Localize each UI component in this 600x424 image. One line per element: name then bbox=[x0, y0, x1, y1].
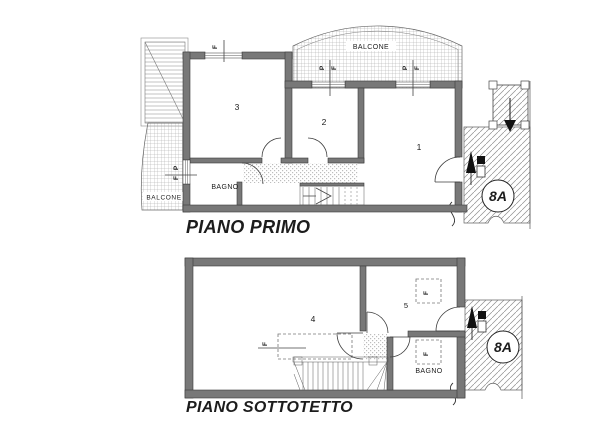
window-bagno bbox=[183, 160, 190, 184]
door-arc-room2 bbox=[308, 138, 327, 157]
door-arc-room4 bbox=[337, 333, 363, 359]
stair-landing-floor bbox=[363, 334, 387, 360]
floor-plan-sheet: BALCONE BALCONE bbox=[0, 0, 600, 424]
balcony-top-label: BALCONE bbox=[353, 44, 389, 51]
floor-plan-sottotetto: F F F 8A bbox=[185, 258, 522, 416]
skylight-room5 bbox=[416, 279, 441, 303]
room5-label: 5 bbox=[404, 301, 408, 310]
marker-f: F bbox=[262, 342, 269, 346]
marker-p: P bbox=[402, 65, 409, 70]
room3-label: 3 bbox=[235, 102, 240, 112]
balcony-left-label: BALCONE bbox=[146, 195, 181, 202]
floor-plan-primo: BALCONE BALCONE bbox=[141, 26, 530, 237]
marker-f: F bbox=[423, 291, 430, 295]
floor-plans-drawing: BALCONE BALCONE bbox=[0, 0, 600, 424]
door-arc-entrance bbox=[435, 157, 460, 182]
marker-p: P bbox=[173, 165, 180, 170]
unit-badge-label: 8A bbox=[494, 339, 512, 355]
entry-square bbox=[489, 81, 529, 132]
room2-label: 2 bbox=[322, 117, 327, 127]
door-arc-entrance bbox=[436, 307, 460, 331]
skylight-markers: F F F bbox=[258, 279, 441, 364]
marker-f: F bbox=[414, 66, 421, 70]
door-arc-room3 bbox=[262, 138, 281, 157]
door-arc-room5 bbox=[367, 312, 388, 333]
room1-label: 1 bbox=[417, 142, 422, 152]
skylight-bagno bbox=[416, 340, 441, 364]
roof-overhang bbox=[141, 38, 188, 126]
marker-f: F bbox=[173, 176, 180, 180]
bagno-label-lower: BAGNO bbox=[415, 368, 442, 375]
title-piano-primo: PIANO PRIMO bbox=[186, 217, 310, 237]
balcony-top: BALCONE bbox=[293, 26, 462, 88]
bagno-label-upper: BAGNO bbox=[211, 184, 238, 191]
marker-p: P bbox=[319, 65, 326, 70]
marker-f: F bbox=[212, 45, 219, 49]
unit-badge-upper: 8A bbox=[482, 180, 514, 212]
staircase-lower bbox=[293, 357, 388, 390]
title-piano-sottotetto: PIANO SOTTOTETTO bbox=[186, 399, 353, 416]
unit-badge-lower: 8A bbox=[487, 331, 519, 363]
room4-label: 4 bbox=[311, 314, 316, 324]
marker-f: F bbox=[331, 66, 338, 70]
staircase-upper bbox=[300, 186, 364, 205]
unit-badge-label: 8A bbox=[489, 188, 507, 204]
marker-f: F bbox=[423, 352, 430, 356]
